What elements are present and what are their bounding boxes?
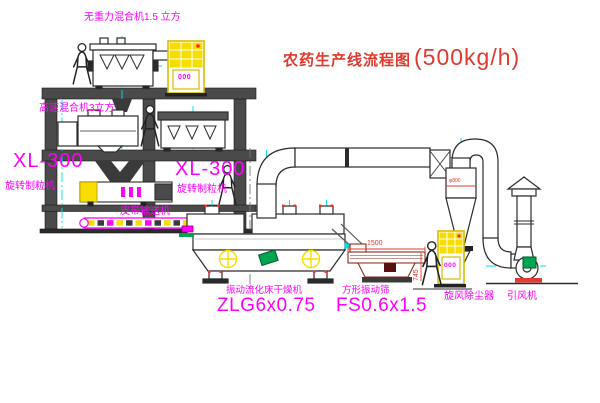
level2-machine [158,112,228,151]
label-high-speed-mixer: 高速混合机3立方 [39,104,115,114]
drawing-title: 农药生产线流程图 (500kg/h) [283,44,520,71]
belt-conveyor-machine [80,218,198,228]
high-speed-mixer-machine [58,110,138,152]
granulator-motor [155,184,172,200]
fan-base [515,278,542,283]
sieve-motor [384,263,396,272]
label-sieve-model: FS0.6x1.5 [336,296,427,315]
indicator-light [457,234,460,237]
dryer-feed-inlet [182,226,193,232]
panel2-text: 000 [444,263,456,270]
label-granulator-left-model: XL-300 [13,151,84,171]
floor-slab-top [42,88,256,99]
label-granulator-mid-name: 旋转制粒机 [177,185,227,195]
title-capacity: (500kg/h) [414,44,520,71]
vibrating-sieve-machine [332,224,425,283]
y-chute [95,161,145,183]
granulator-machine [80,182,172,206]
fan-motor [523,257,536,268]
label-granulator-mid-model: XL-300 [175,159,246,179]
label-cyclone: 旋风除尘器 [444,292,494,302]
label-gravity-mixer: 无重力混合机1.5 立方 [84,13,181,23]
dim-sieve-length: 1500 [367,240,383,247]
person-figure [73,44,90,84]
title-chinese: 农药生产线流程图 [283,49,411,70]
pesticide-line-flow-drawing: 农药生产线流程图 (500kg/h) 无重力混合机1.5 立方 高速混合机3立方… [0,0,600,403]
dim-cyclone-diameter: φ800 [449,179,461,184]
label-belt-conveyor: 皮带输送机 [120,207,170,217]
stack-roof [508,177,540,189]
label-fan: 引风机 [507,292,537,302]
label-granulator-left-name: 旋转制粒机 [5,182,55,192]
gravity-mixer-machine [88,38,170,112]
control-cabinet-1 [165,41,207,97]
panel1-text: 000 [178,74,191,81]
label-dryer-model: ZLG6x0.75 [217,296,316,315]
indicator-light [196,44,200,48]
dim-sieve-height: 745 [413,269,420,281]
